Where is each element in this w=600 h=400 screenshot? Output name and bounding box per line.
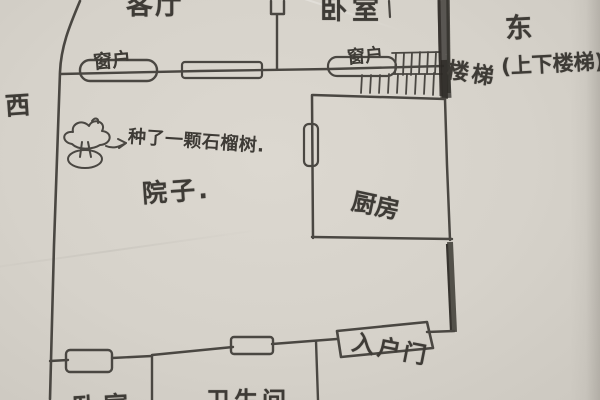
window-south-1 xyxy=(66,350,112,372)
room-label-bathroom: 卫生间 xyxy=(206,381,290,400)
wall-top-divider xyxy=(271,1,284,69)
wall-right-thick xyxy=(447,242,454,332)
window-south-2 xyxy=(231,337,273,354)
stairs-note: (上下楼梯) xyxy=(500,45,600,80)
wall-left xyxy=(50,1,80,399)
compass-east: 东 xyxy=(504,5,533,45)
window-label-1: 窗户 xyxy=(92,44,132,74)
room-label-bedroom-bottom: 卧室 xyxy=(71,384,137,400)
room-label-bedroom-top: 卧室 xyxy=(320,0,384,27)
room-label-courtyard: 院子. xyxy=(141,170,212,211)
wall-right xyxy=(445,99,450,240)
window-label-2: 窗户 xyxy=(346,40,384,69)
wall-right-corner xyxy=(427,331,454,332)
wall-bathroom-right xyxy=(316,341,318,400)
tree-doodle xyxy=(64,119,109,168)
floor-plan-sketch: 客厅 卧室 东 楼梯 (上下楼梯) 西 窗户 窗户 种了一颗石榴树. 院子. 厨… xyxy=(0,0,600,400)
room-label-living: 客厅 xyxy=(126,0,184,22)
compass-west: 西 xyxy=(4,85,31,123)
stroke-after-bedroom xyxy=(389,1,390,17)
